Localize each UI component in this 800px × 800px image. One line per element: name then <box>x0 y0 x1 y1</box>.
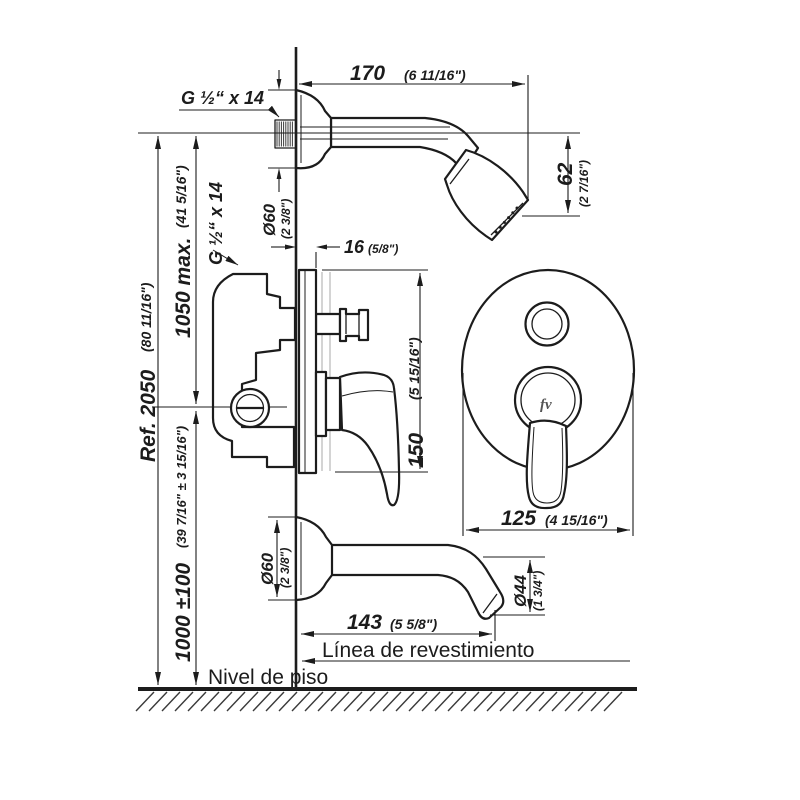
technical-drawing-page: fv Ref. 2050 (80 11/16") 1050 max. (41 5… <box>0 0 800 800</box>
diverter-button-inner <box>532 309 562 339</box>
dim-spout-height-in: (39 7/16" ± 3 15/16") <box>174 426 189 548</box>
handle-lever-side <box>340 372 399 505</box>
dim-head-drop: 62 <box>554 162 577 186</box>
dim-shower-flange-in: (2 3/8") <box>279 199 293 239</box>
dim-plate-depth: 16 <box>344 237 365 257</box>
finish-line-label: Línea de revestimiento <box>322 639 534 662</box>
dim-spout-dia-in: (1 3/4") <box>531 571 545 611</box>
dim-plate-depth-group: 16 (5/8") <box>271 237 398 268</box>
dim-arm-length-in: (6 11/16") <box>404 67 466 83</box>
dim-spout-length-in: (5 5/8") <box>390 616 437 632</box>
dim-head-drop-in: (2 7/16") <box>577 160 591 207</box>
thread-valve-label: G ½“ x 14 <box>206 182 226 265</box>
dim-head-drop-group: 62 (2 7/16") <box>522 136 591 216</box>
dim-spout-length-group: 143 (5 5/8") <box>301 610 495 641</box>
handle-escutcheon-step2 <box>326 378 340 430</box>
valve-body <box>213 274 295 467</box>
dim-plate-height-in: (5 15/16") <box>406 337 422 400</box>
floor <box>136 689 637 711</box>
dim-total-height: Ref. 2050 <box>137 369 160 462</box>
dim-total-height-in: (80 11/16") <box>138 282 154 352</box>
dim-spout-length: 143 <box>347 611 382 634</box>
reference-labels: Línea de revestimiento Nivel de piso <box>208 639 630 689</box>
dim-plate-width: 125 <box>501 507 536 530</box>
dim-shower-flange-group: Ø60 (2 3/8") <box>260 70 297 239</box>
handle-lever-front <box>527 421 567 508</box>
floor-hatching <box>136 692 622 711</box>
threaded-nipple <box>275 120 296 148</box>
dim-arm-length: 170 <box>350 62 385 85</box>
dim-mixer-height-in: (41 5/16") <box>173 165 189 228</box>
dim-spout-flange: Ø60 <box>258 552 277 585</box>
shower-mixer-installation-diagram: fv Ref. 2050 (80 11/16") 1050 max. (41 5… <box>0 0 800 800</box>
dim-shower-flange: Ø60 <box>260 203 279 236</box>
shower-head <box>445 150 528 240</box>
spout-tube <box>331 545 503 619</box>
thread-hatching <box>277 122 292 147</box>
dim-plate-width-in: (4 15/16") <box>545 512 608 528</box>
brand-logo: fv <box>540 397 552 413</box>
floor-level-label: Nivel de piso <box>208 666 328 689</box>
dim-mixer-height: 1050 max. <box>172 238 195 338</box>
dim-spout-flange-in: (2 3/8") <box>278 548 292 588</box>
dim-plate-depth-in: (5/8") <box>368 242 398 256</box>
diverter-stem <box>316 314 340 334</box>
tub-spout-assembly <box>296 517 503 619</box>
trim-plate-side <box>299 270 316 473</box>
trim-plate-front-view: fv <box>462 270 634 508</box>
dim-plate-height: 150 <box>405 433 428 468</box>
dim-spout-height: 1000 ±100 <box>172 563 195 662</box>
dim-spout-dia: Ø44 <box>511 574 530 607</box>
dim-spout-flange-group: Ø60 (2 3/8") <box>258 517 297 600</box>
trim-plate-side-view <box>299 270 399 505</box>
thread-shower-label: G ½“ x 14 <box>181 88 264 108</box>
diverter-knob <box>340 309 368 341</box>
shower-arm-assembly <box>275 90 528 240</box>
handle-escutcheon-step1 <box>316 372 326 436</box>
